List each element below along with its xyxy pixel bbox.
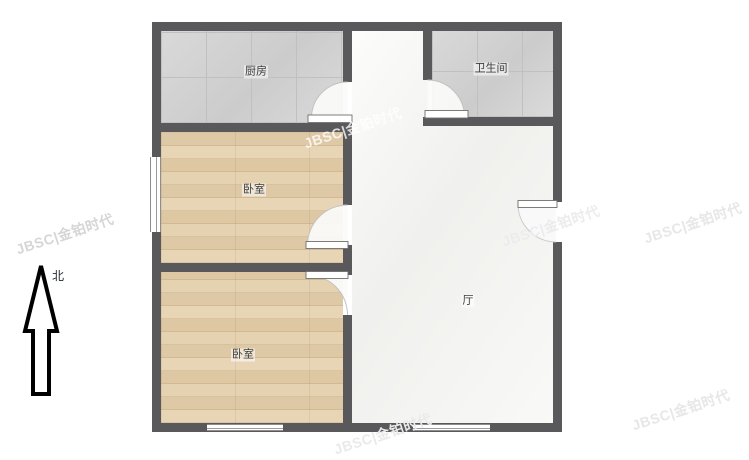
bedroom-lower-label: 卧室 xyxy=(231,349,255,362)
door-swing-bedroom-upper xyxy=(308,205,348,245)
bedroom-upper-label: 卧室 xyxy=(242,184,266,197)
bathroom-label: 卫生间 xyxy=(474,63,509,76)
door-swing-bedroom-lower xyxy=(308,275,348,315)
door-leaf-kitchen xyxy=(308,115,352,123)
door-leaf-bedroom-lower xyxy=(306,272,348,279)
doors-overlay xyxy=(0,0,749,460)
hall-label: 厅 xyxy=(462,295,475,308)
door-swing-kitchen xyxy=(312,82,348,118)
floor-plan: 厨房 卫生间 卧室 卧室 厅 北 JBSC|金铂时代 JBSC|金铂时代 JBS… xyxy=(0,0,749,460)
kitchen-label: 厨房 xyxy=(244,66,268,79)
north-label: 北 xyxy=(52,267,64,284)
door-leaf-bathroom xyxy=(425,111,468,119)
door-leaf-bedroom-upper xyxy=(306,242,348,249)
door-swing-entrance xyxy=(518,204,556,242)
door-leaf-entrance xyxy=(518,201,557,208)
